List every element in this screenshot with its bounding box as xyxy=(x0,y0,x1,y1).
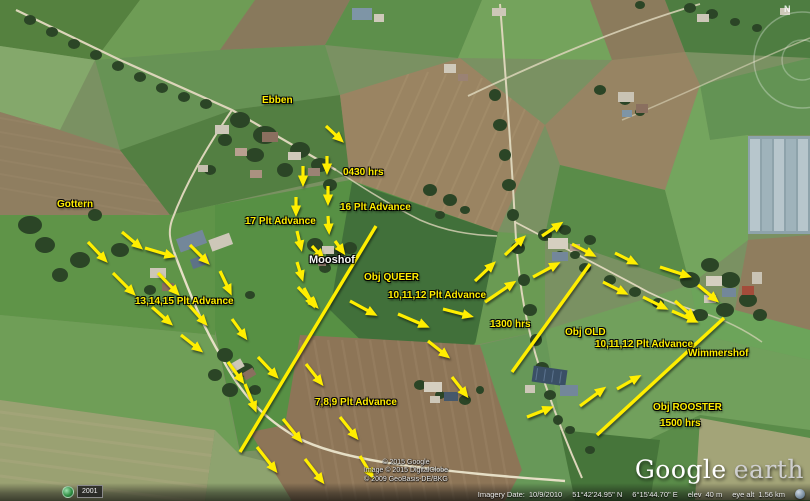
imagery-year-badge: 2001 xyxy=(77,485,103,498)
eye-altitude-readout: eye alt 1.56 km xyxy=(732,490,785,499)
satellite-imagery[interactable] xyxy=(0,0,810,501)
status-bar: Imagery Date: 10/9/2010 51°42'24.95" N 6… xyxy=(478,489,805,499)
logo-google-text: Google xyxy=(635,455,727,484)
elevation-readout: elev 40 m xyxy=(688,490,722,499)
imagery-date-value: 10/9/2010 xyxy=(529,490,562,499)
google-earth-viewport[interactable]: EbbenGottern0430 hrs17 Plt Advance16 Plt… xyxy=(0,0,810,501)
eye-alt-value: 1.56 km xyxy=(758,490,785,499)
elev-value: 40 m xyxy=(706,490,723,499)
historical-imagery-marker[interactable]: 2001 xyxy=(62,485,103,498)
imagery-date: Imagery Date: 10/9/2010 xyxy=(478,490,562,499)
imagery-date-label: Imagery Date: xyxy=(478,490,525,499)
copyright-attribution: © 2015 Google Image © 2015 DigitalGlobe … xyxy=(306,459,506,484)
clock-icon xyxy=(62,486,74,498)
longitude-readout: 6°15'44.70" E xyxy=(632,490,677,499)
eye-alt-label: eye alt xyxy=(732,490,754,499)
copyright-line-3: © 2009 GeoBasis-DE/BKG xyxy=(306,476,506,484)
logo-earth-text: earth xyxy=(734,455,804,484)
globe-icon xyxy=(795,489,805,499)
google-earth-logo: Googleearth xyxy=(635,455,804,484)
elev-label: elev xyxy=(688,490,702,499)
latitude-readout: 51°42'24.95" N xyxy=(572,490,622,499)
copyright-line-2: Image © 2015 DigitalGlobe xyxy=(306,467,506,475)
greenhouse-buildings xyxy=(748,136,810,234)
